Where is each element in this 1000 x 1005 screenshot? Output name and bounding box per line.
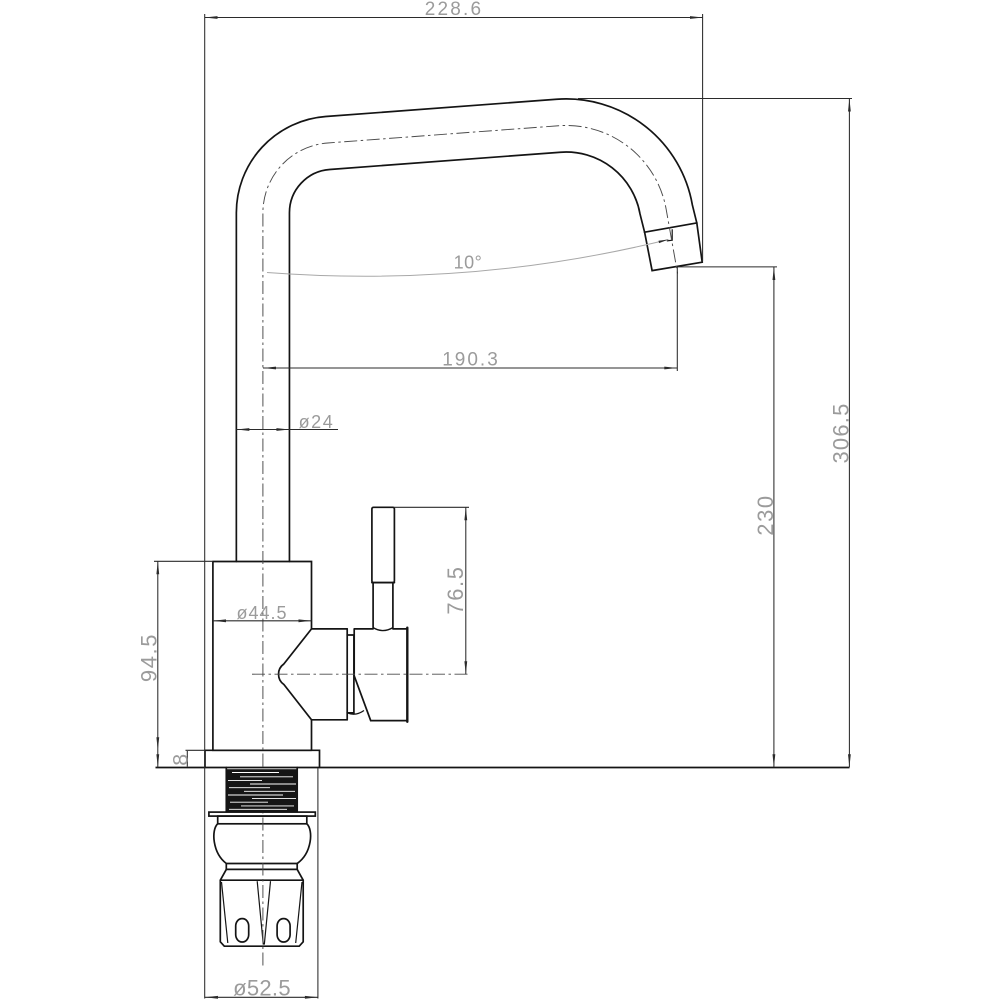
svg-text:ø44.5: ø44.5 [236,603,287,623]
svg-text:8: 8 [169,754,193,766]
svg-text:230: 230 [753,494,778,536]
svg-text:94.5: 94.5 [137,633,162,682]
svg-text:190.3: 190.3 [442,350,500,371]
svg-text:306.5: 306.5 [828,402,853,463]
svg-text:ø52.5: ø52.5 [233,976,291,1001]
svg-text:10°: 10° [454,253,483,273]
svg-text:228.6: 228.6 [425,0,484,20]
svg-text:76.5: 76.5 [443,565,468,614]
svg-text:ø24: ø24 [299,412,335,432]
